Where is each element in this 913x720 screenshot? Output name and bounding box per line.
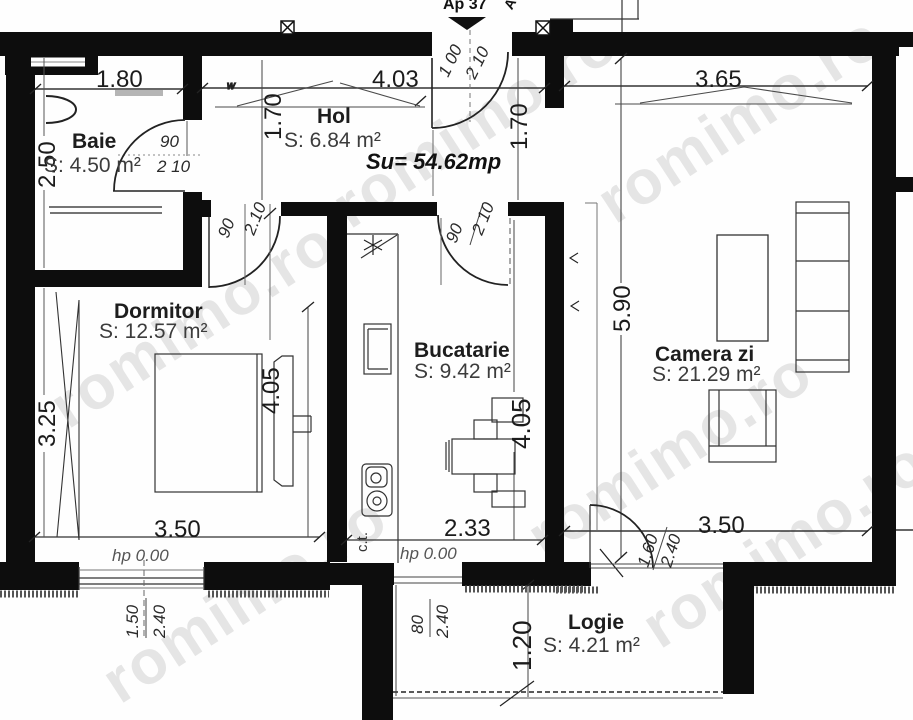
svg-text:c.t.: c.t. [354, 532, 371, 552]
svg-text:3.50: 3.50 [154, 516, 201, 543]
svg-text:3.25: 3.25 [34, 400, 61, 447]
svg-text:5.90: 5.90 [609, 285, 636, 332]
svg-text:Bucatarie: Bucatarie [414, 339, 510, 362]
svg-text:80: 80 [408, 615, 427, 634]
svg-text:S: 21.29 m²: S: 21.29 m² [652, 363, 761, 386]
svg-text:2.40: 2.40 [433, 604, 452, 639]
svg-text:3.50: 3.50 [698, 512, 745, 539]
svg-text:1.80: 1.80 [96, 66, 143, 93]
svg-text:1.50: 1.50 [123, 604, 142, 638]
svg-text:Baie: Baie [72, 130, 116, 153]
svg-text:2.40: 2.40 [150, 604, 169, 639]
svg-text:1.70: 1.70 [260, 93, 287, 140]
svg-text:S: 9.42 m²: S: 9.42 m² [414, 360, 511, 383]
svg-text:90: 90 [160, 132, 179, 151]
svg-text:S: 12.57 m²: S: 12.57 m² [99, 320, 208, 343]
svg-text:hp 0.00: hp 0.00 [112, 546, 169, 565]
svg-text:hp 0.00: hp 0.00 [400, 544, 457, 563]
svg-text:4.05: 4.05 [258, 367, 285, 414]
svg-text:Hol: Hol [317, 105, 351, 128]
svg-text:Logie: Logie [568, 611, 624, 634]
svg-text:4.05: 4.05 [506, 398, 536, 449]
svg-text:1.70: 1.70 [506, 103, 533, 150]
svg-text:Ap 37: Ap 37 [443, 0, 487, 13]
svg-text:Su= 54.62mp: Su= 54.62mp [366, 149, 501, 174]
svg-text:w: w [227, 80, 236, 92]
svg-text:2 10: 2 10 [156, 157, 191, 176]
svg-text:S: 4.21 m²: S: 4.21 m² [543, 634, 640, 657]
svg-text:4.03: 4.03 [372, 66, 419, 93]
svg-text:S: 4.50 m²: S: 4.50 m² [44, 154, 141, 177]
svg-text:3.65: 3.65 [695, 66, 742, 93]
svg-text:2.33: 2.33 [444, 515, 491, 542]
svg-text:1.20: 1.20 [507, 620, 537, 671]
